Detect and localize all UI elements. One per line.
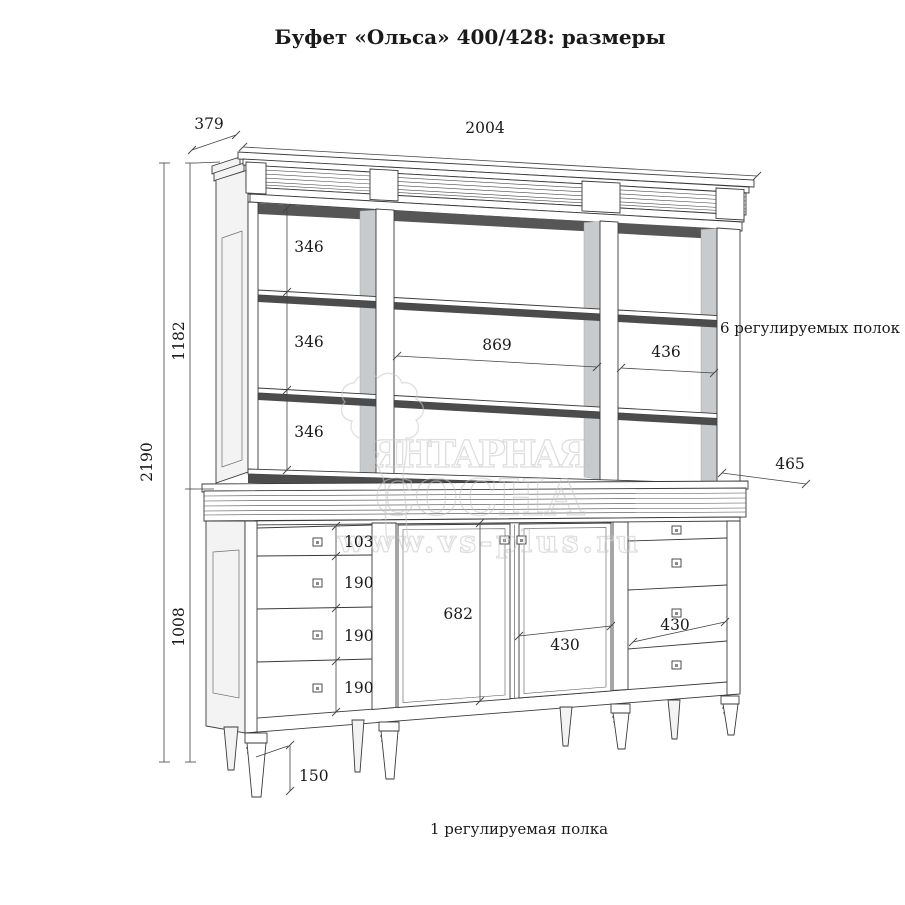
- dim-height-base-label: 1008: [170, 607, 188, 646]
- dim-height-total-label: 2190: [138, 442, 156, 481]
- furniture-dimension-drawing: Буфет «Ольса» 400/428: размеры: [0, 0, 905, 905]
- hutch-side-panel: [216, 170, 248, 483]
- dim-mid-width-label: 869: [482, 336, 512, 354]
- dim-width-total-label: 2004: [465, 119, 505, 137]
- note-base-shelf: 1 регулируемая полка: [430, 820, 608, 838]
- dim-drawer-3-label: 190: [344, 627, 374, 645]
- cornice-capital-mid2: [582, 181, 620, 213]
- cornice-capital-left: [246, 162, 266, 194]
- dim-drawer-4-label: 190: [344, 679, 374, 697]
- dim-leg-height-label: 150: [299, 767, 329, 785]
- base-pilaster-right: [727, 521, 740, 695]
- dim-shelf-gap-1-label: 346: [294, 238, 324, 256]
- watermark-brand-line2: СОСНА: [375, 468, 585, 527]
- note-hutch-shelves: 6 регулируемых полок: [720, 319, 901, 337]
- dim-shelf-gap-2-label: 346: [294, 333, 324, 351]
- dim-height-hutch-label: 1182: [170, 321, 188, 360]
- dim-shelf-gap-3-label: 346: [294, 423, 324, 441]
- base-pilaster-left: [245, 521, 257, 733]
- hutch-divider-2: [600, 221, 618, 481]
- cornice-capital-right: [716, 188, 744, 220]
- dim-depth-top-label: 379: [194, 115, 224, 133]
- dim-drawer-1-label: 103: [344, 533, 374, 551]
- hutch-pilaster-right: [717, 228, 740, 484]
- page-title: Буфет «Ольса» 400/428: размеры: [274, 25, 665, 49]
- dim-right-drawer-width-label: 430: [660, 616, 690, 634]
- cornice-capital-mid1: [370, 169, 398, 201]
- hutch-pilaster-left: [248, 202, 258, 471]
- dim-right-width-label: 436: [651, 343, 681, 361]
- drawing-page: Буфет «Ольса» 400/428: размеры: [0, 0, 905, 905]
- dim-drawer-2-label: 190: [344, 574, 374, 592]
- dim-door-height-label: 682: [443, 605, 473, 623]
- dim-door-width-label: 430: [550, 636, 580, 654]
- dim-base-depth-label: 465: [775, 455, 805, 473]
